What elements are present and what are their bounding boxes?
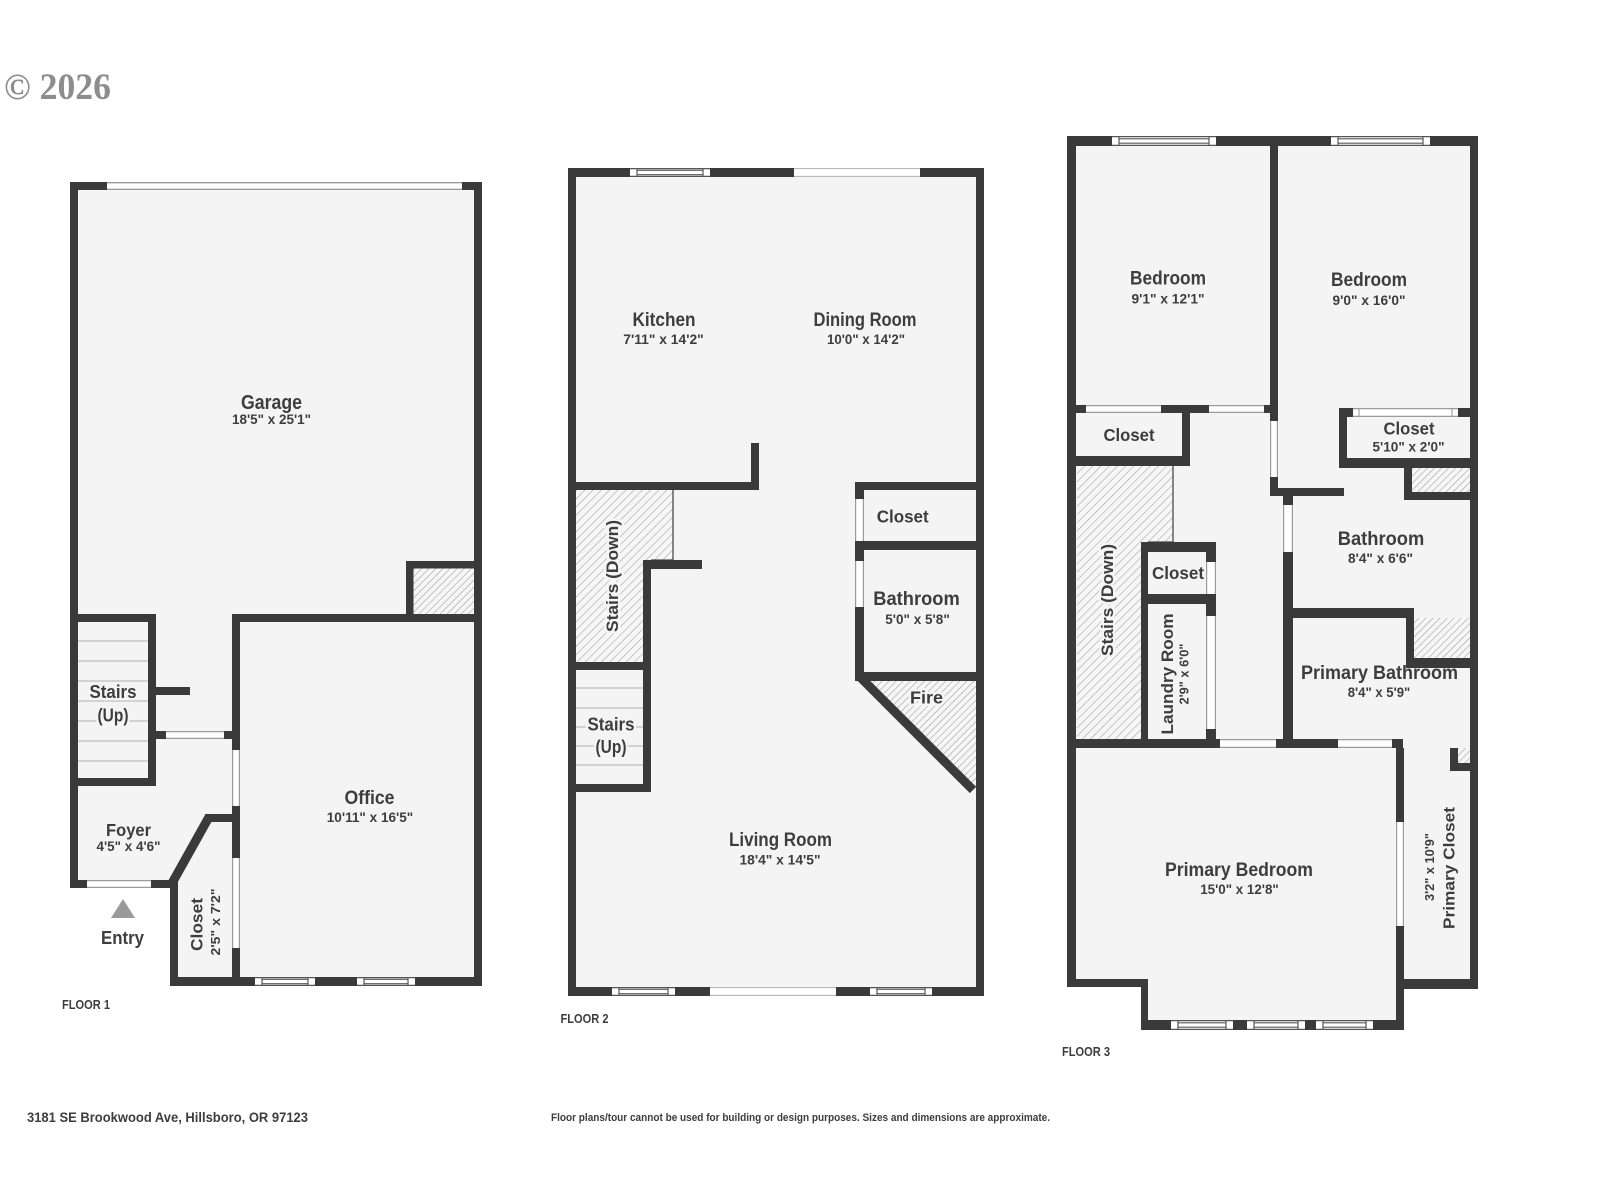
svg-text:Living Room: Living Room	[729, 830, 832, 851]
svg-text:7'11" x 14'2": 7'11" x 14'2"	[623, 331, 704, 347]
svg-text:Kitchen: Kitchen	[633, 310, 696, 331]
svg-text:10'0" x 14'2": 10'0" x 14'2"	[827, 331, 905, 347]
svg-text:Closet: Closet	[1104, 425, 1155, 445]
svg-text:Fire: Fire	[910, 688, 943, 708]
svg-text:Entry: Entry	[101, 928, 144, 948]
svg-text:Laundry Room: Laundry Room	[1159, 614, 1177, 735]
svg-text:8'4" x 5'9": 8'4" x 5'9"	[1348, 684, 1411, 700]
svg-text:10'11" x 16'5": 10'11" x 16'5"	[327, 809, 414, 825]
svg-text:18'5" x 25'1": 18'5" x 25'1"	[232, 411, 311, 427]
svg-text:Primary Closet: Primary Closet	[1441, 806, 1458, 929]
svg-text:Stairs (Down): Stairs (Down)	[603, 520, 622, 632]
svg-text:Stairs (Down): Stairs (Down)	[1098, 544, 1117, 656]
svg-text:Closet: Closet	[188, 898, 207, 951]
svg-text:(Up): (Up)	[98, 706, 129, 726]
svg-text:Closet: Closet	[1152, 563, 1204, 583]
svg-text:(Up): (Up)	[596, 737, 627, 757]
svg-text:Primary Bedroom: Primary Bedroom	[1165, 860, 1313, 881]
svg-text:Bedroom: Bedroom	[1331, 270, 1407, 291]
svg-text:Dining Room: Dining Room	[814, 310, 917, 331]
svg-text:Bathroom: Bathroom	[873, 589, 960, 610]
svg-text:Stairs: Stairs	[90, 682, 137, 702]
svg-text:Stairs: Stairs	[588, 715, 635, 735]
svg-text:© 2026: © 2026	[4, 67, 111, 108]
svg-text:Bedroom: Bedroom	[1130, 269, 1206, 290]
svg-text:3181 SE Brookwood Ave, Hillsbo: 3181 SE Brookwood Ave, Hillsboro, OR 971…	[27, 1110, 308, 1125]
svg-text:Closet: Closet	[877, 507, 929, 527]
svg-text:Floor plans/tour cannot be use: Floor plans/tour cannot be used for buil…	[551, 1112, 1050, 1124]
svg-text:Primary Bathroom: Primary Bathroom	[1301, 663, 1458, 684]
svg-text:4'5" x 4'6": 4'5" x 4'6"	[97, 838, 161, 854]
svg-text:FLOOR 2: FLOOR 2	[561, 1012, 609, 1026]
svg-text:8'4" x 6'6": 8'4" x 6'6"	[1348, 550, 1413, 566]
svg-text:Office: Office	[345, 788, 395, 809]
svg-text:FLOOR 3: FLOOR 3	[1062, 1045, 1110, 1059]
svg-text:9'0" x 16'0": 9'0" x 16'0"	[1333, 292, 1406, 308]
svg-text:3'2" x 10'9": 3'2" x 10'9"	[1423, 833, 1437, 901]
svg-text:18'4" x 14'5": 18'4" x 14'5"	[740, 852, 821, 868]
svg-text:2'9" x 6'0": 2'9" x 6'0"	[1178, 643, 1192, 704]
svg-text:Foyer: Foyer	[106, 820, 151, 840]
svg-text:15'0" x 12'8": 15'0" x 12'8"	[1200, 881, 1279, 897]
svg-text:5'10" x 2'0": 5'10" x 2'0"	[1373, 439, 1445, 455]
svg-text:9'1" x 12'1": 9'1" x 12'1"	[1132, 291, 1205, 307]
svg-text:Closet: Closet	[1384, 419, 1435, 439]
svg-text:2'5" x 7'2": 2'5" x 7'2"	[208, 889, 223, 956]
svg-text:Bathroom: Bathroom	[1338, 529, 1425, 550]
svg-text:5'0" x 5'8": 5'0" x 5'8"	[885, 611, 950, 627]
svg-text:FLOOR 1: FLOOR 1	[62, 998, 110, 1012]
